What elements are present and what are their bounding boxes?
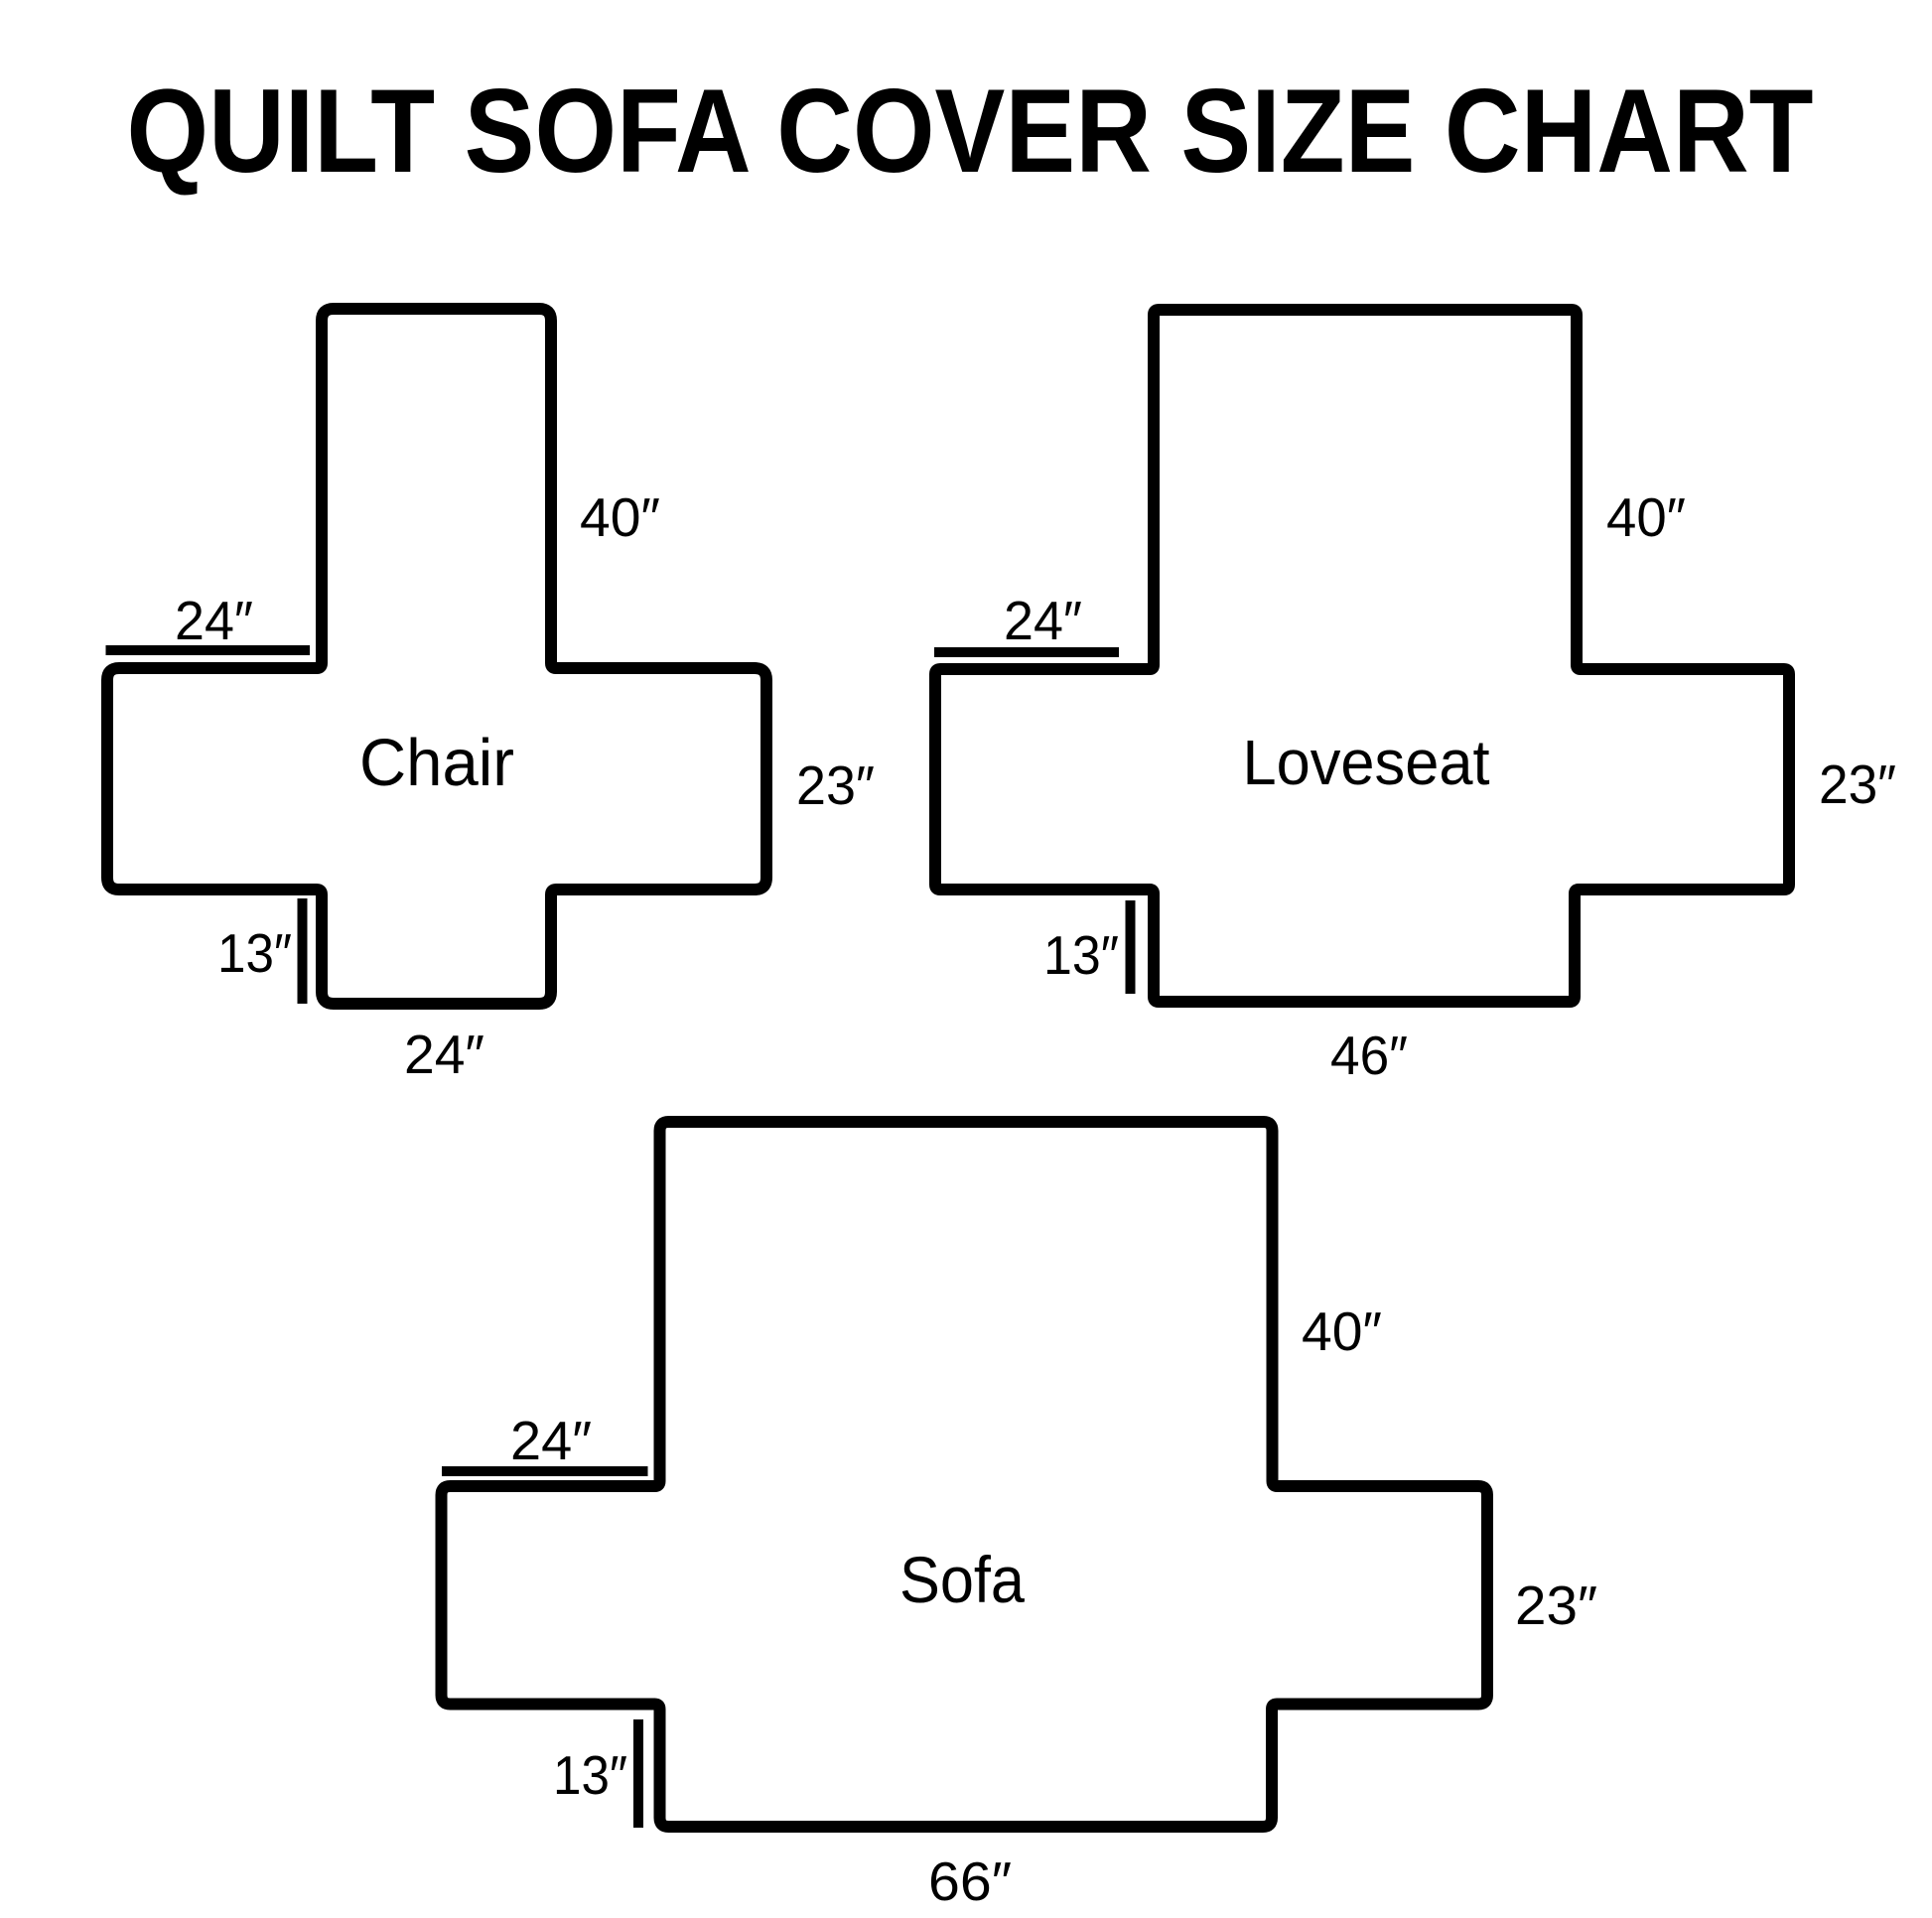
svg-text:23″: 23″: [1515, 1575, 1597, 1636]
svg-text:23″: 23″: [796, 754, 875, 816]
svg-text:40″: 40″: [580, 486, 660, 548]
svg-text:Loveseat: Loveseat: [1243, 727, 1490, 798]
svg-text:Sofa: Sofa: [899, 1543, 1025, 1616]
svg-text:Chair: Chair: [359, 726, 514, 800]
svg-text:24″: 24″: [510, 1410, 592, 1471]
svg-text:13″: 13″: [217, 922, 292, 984]
svg-text:24″: 24″: [175, 590, 253, 651]
svg-text:24″: 24″: [1004, 590, 1082, 651]
svg-text:QUILT SOFA COVER SIZE CHART: QUILT SOFA COVER SIZE CHART: [127, 65, 1814, 198]
svg-text:46″: 46″: [1330, 1025, 1408, 1086]
svg-text:23″: 23″: [1819, 753, 1896, 815]
svg-text:66″: 66″: [928, 1850, 1012, 1912]
svg-text:40″: 40″: [1302, 1301, 1382, 1362]
svg-text:40″: 40″: [1606, 486, 1686, 548]
svg-text:24″: 24″: [404, 1024, 484, 1085]
svg-text:13″: 13″: [1043, 924, 1119, 986]
svg-text:13″: 13″: [553, 1744, 627, 1806]
